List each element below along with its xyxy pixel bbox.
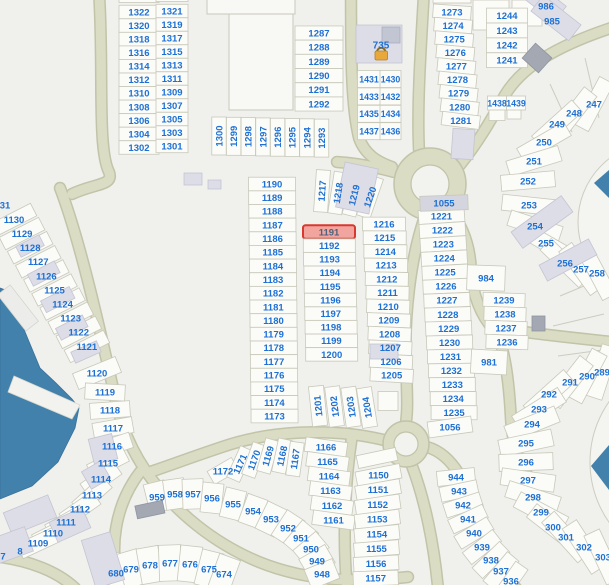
parcel-label-1164: 1164 [319, 472, 340, 483]
parcel-label-1190: 1190 [262, 179, 283, 190]
parcel-label-1166: 1166 [316, 442, 337, 453]
parcel-label-1213: 1213 [376, 261, 397, 272]
parcel-label-1313: 1313 [161, 60, 182, 71]
parcel-label-250: 250 [536, 137, 552, 148]
parcel-label-1121: 1121 [77, 342, 98, 353]
parcel-label-255: 255 [538, 238, 555, 249]
parcel-label-303: 303 [595, 552, 609, 563]
parcel-label-1196: 1196 [320, 295, 341, 306]
parcel-label-1153: 1153 [367, 515, 388, 526]
parcel-label-1179: 1179 [263, 330, 284, 341]
parcel-label-677: 677 [162, 558, 178, 569]
parcel-label-1279: 1279 [448, 89, 469, 100]
parcel-label-1114: 1114 [91, 474, 112, 485]
parcel-label-1156: 1156 [366, 559, 387, 570]
parcel-label-1432: 1432 [381, 92, 401, 102]
parcel-label-1175: 1175 [264, 384, 285, 395]
parcel[interactable] [119, 0, 159, 3]
parcel-label-1187: 1187 [262, 220, 283, 231]
parcel-label-1308: 1308 [128, 102, 149, 113]
parcel-label-302: 302 [576, 542, 592, 553]
parcel-label-1239: 1239 [493, 295, 514, 306]
parcel[interactable] [156, 0, 188, 2]
parcel-label-1235: 1235 [444, 408, 466, 419]
parcel-label-1217: 1217 [317, 180, 329, 202]
parcel-label-1152: 1152 [367, 500, 388, 511]
parcel-label-1315: 1315 [161, 47, 183, 58]
parcel-label-679: 679 [123, 564, 139, 575]
parcel-label-984: 984 [478, 273, 495, 284]
parcel-label-297: 297 [520, 475, 536, 486]
parcel-label-1300: 1300 [214, 125, 225, 146]
parcel-label-1201: 1201 [312, 394, 325, 417]
parcel-label-1236: 1236 [496, 337, 517, 348]
parcel-label-1154: 1154 [367, 529, 388, 540]
parcel-label-957: 957 [185, 489, 201, 500]
parcel-label-1299: 1299 [229, 126, 240, 147]
parcel-label-1227: 1227 [436, 296, 457, 307]
parcel-label-1125: 1125 [44, 285, 65, 296]
parcel-label-301: 301 [558, 532, 575, 543]
parcel-label-1297: 1297 [258, 126, 269, 147]
parcel-label-1316: 1316 [128, 48, 149, 59]
parcel-label-1123: 1123 [60, 314, 81, 325]
parcel-label-956: 956 [204, 493, 220, 504]
parcel-label-1301: 1301 [161, 141, 183, 152]
parcel-label-1288: 1288 [308, 43, 329, 54]
parcel[interactable] [433, 0, 471, 3]
parcel-label-1321: 1321 [161, 6, 183, 17]
parcel-label-954: 954 [245, 506, 262, 517]
parcel-label-1433: 1433 [359, 92, 379, 102]
parcel-label-1216: 1216 [373, 219, 394, 230]
parcel-label-1230: 1230 [439, 338, 460, 349]
parcel-label-1289: 1289 [308, 57, 329, 68]
parcel-label-1225: 1225 [435, 268, 457, 279]
parcel-label-1439: 1439 [506, 98, 526, 108]
parcel-label-1287: 1287 [308, 28, 329, 39]
parcel-label-1304: 1304 [128, 129, 150, 140]
map-label-985: 985 [544, 16, 561, 27]
parcel-label-1302: 1302 [128, 143, 149, 154]
parcel-label-1228: 1228 [437, 310, 458, 321]
parcel-label-1232: 1232 [441, 366, 462, 377]
parcel-label-939: 939 [474, 542, 490, 553]
parcel-label-1180: 1180 [263, 316, 284, 327]
parcel-label-1195: 1195 [320, 282, 341, 293]
parcel-label-1189: 1189 [262, 193, 283, 204]
parcel-label-249: 249 [549, 119, 565, 130]
parcel-label-1122: 1122 [68, 328, 89, 339]
parcel-label-678: 678 [142, 560, 158, 571]
parcel-label-1207: 1207 [380, 343, 401, 354]
parcel-label-1435: 1435 [359, 109, 379, 119]
parcel-label-1161: 1161 [323, 515, 344, 526]
parcel-label-1233: 1233 [442, 380, 463, 391]
parcel-label-1178: 1178 [263, 343, 284, 354]
parcel-label-1172: 1172 [213, 466, 234, 477]
parcel-label-959: 959 [149, 492, 165, 503]
parcel-label-291: 291 [562, 377, 579, 388]
parcel[interactable] [489, 110, 505, 121]
parcel-label-1231: 1231 [440, 352, 462, 363]
parcel-label-680: 680 [108, 568, 124, 579]
parcel-label-257: 257 [573, 264, 589, 275]
parcel-label-1306: 1306 [128, 116, 149, 127]
parcel-label-936: 936 [503, 576, 519, 585]
parcel-label-948: 948 [314, 569, 330, 580]
parcel-label-299: 299 [533, 507, 549, 518]
parcel-label-1434: 1434 [381, 109, 401, 119]
parcel-label-1163: 1163 [320, 486, 341, 497]
parcel-label-1238: 1238 [494, 309, 515, 320]
parcel-label-1436: 1436 [381, 127, 401, 137]
parcel-label-1174: 1174 [264, 398, 285, 409]
parcel-label-1275: 1275 [444, 35, 466, 46]
parcel-label-1244: 1244 [496, 11, 518, 22]
map-canvas[interactable]: 1322132013181316131413121310130813061304… [0, 0, 609, 585]
parcel-label-1222: 1222 [432, 225, 453, 236]
parcel-label-1314: 1314 [128, 62, 150, 73]
parcel-label-1215: 1215 [374, 233, 396, 244]
parcel-label-1181: 1181 [263, 302, 284, 313]
parcel-label-1205: 1205 [381, 371, 403, 382]
parcel-label-1177: 1177 [264, 357, 285, 368]
parcel-label-1438: 1438 [487, 98, 507, 108]
parcel-label-251: 251 [526, 156, 543, 167]
parcel-label-1276: 1276 [445, 48, 466, 59]
parcel-label-1165: 1165 [317, 457, 338, 468]
parcel-label-1206: 1206 [380, 357, 401, 368]
parcel-label-1211: 1211 [377, 288, 398, 299]
parcel-label-1274: 1274 [443, 21, 465, 32]
parcel-label-1223: 1223 [433, 240, 454, 251]
parcel-label-252: 252 [520, 176, 536, 187]
parcel-label-941: 941 [460, 514, 477, 525]
parcel-label-1115: 1115 [98, 458, 119, 469]
parcel-label-293: 293 [531, 404, 547, 415]
parcel-label-1296: 1296 [273, 127, 284, 148]
parcel-label-1310: 1310 [128, 89, 149, 100]
parcel-label-1318: 1318 [128, 35, 149, 46]
parcel-label-1173: 1173 [264, 411, 285, 422]
parcel-label-1116: 1116 [102, 441, 122, 452]
parcel-label-1293: 1293 [317, 128, 328, 149]
parcel-label-1294: 1294 [302, 127, 313, 149]
map-label-31: 31 [0, 200, 11, 211]
parcel-label-1295: 1295 [288, 126, 299, 148]
parcel-label-1176: 1176 [264, 371, 285, 382]
parcel-label-1320: 1320 [128, 21, 149, 32]
parcel-label-1113: 1113 [82, 490, 102, 501]
parcel-label-1191: 1191 [319, 227, 340, 238]
parcel-label-1127: 1127 [28, 257, 49, 268]
parcel-label-1199: 1199 [321, 336, 342, 347]
parcel-label-1162: 1162 [322, 501, 343, 512]
parcel-label-1280: 1280 [449, 102, 470, 113]
parcel-label-1437: 1437 [359, 127, 379, 137]
parcel-label-1200: 1200 [321, 350, 342, 361]
parcel-label-940: 940 [466, 528, 482, 539]
parcel-label-1184: 1184 [263, 261, 284, 272]
parcel-label-1194: 1194 [320, 268, 341, 279]
parcel-label-1118: 1118 [100, 405, 120, 416]
parcel-label-1188: 1188 [262, 207, 283, 218]
parcel-label-943: 943 [451, 486, 467, 497]
parcel-label-1055: 1055 [433, 198, 455, 209]
parcel-label-1242: 1242 [496, 41, 517, 52]
parcel-label-1317: 1317 [161, 33, 182, 44]
map-label-986: 986 [538, 1, 554, 12]
parcel-label-1183: 1183 [263, 275, 284, 286]
parcel-label-1309: 1309 [161, 87, 182, 98]
parcel-label-1182: 1182 [263, 289, 284, 300]
parcel-label-296: 296 [518, 457, 534, 468]
parcel-label-1124: 1124 [52, 300, 73, 311]
parcel-label-1273: 1273 [441, 7, 462, 18]
parcel-label-1307: 1307 [161, 101, 182, 112]
parcel-label-253: 253 [521, 200, 537, 211]
parcel-label-944: 944 [448, 472, 465, 483]
parcel-label-950: 950 [303, 544, 319, 555]
parcel-label-1130: 1130 [4, 215, 25, 226]
parcel-label-1198: 1198 [321, 323, 342, 334]
map-label-8: 8 [17, 546, 22, 557]
parcel-label-292: 292 [541, 389, 557, 400]
parcel-label-1305: 1305 [161, 114, 183, 125]
parcel-label-258: 258 [589, 268, 605, 279]
parcel-label-1192: 1192 [319, 241, 340, 252]
parcel-label-1278: 1278 [447, 75, 468, 86]
parcel-label-1111: 1111 [56, 517, 76, 528]
parcel-label-1056: 1056 [439, 422, 460, 433]
parcel-label-1126: 1126 [36, 271, 57, 282]
parcel-label-290: 290 [579, 371, 595, 382]
parcel-label-1210: 1210 [378, 302, 399, 313]
parcel-label-1109: 1109 [28, 538, 49, 549]
parcel-label-1197: 1197 [320, 309, 341, 320]
parcel-label-1226: 1226 [435, 282, 456, 293]
parcel-label-248: 248 [566, 108, 582, 119]
parcel-label-1322: 1322 [128, 7, 149, 18]
parcel-label-951: 951 [293, 533, 310, 544]
parcel-label-1290: 1290 [308, 71, 329, 82]
parcel-label-1208: 1208 [379, 329, 400, 340]
parcel-label-942: 942 [455, 500, 471, 511]
parcel-label-981: 981 [481, 357, 498, 368]
parcel-label-1150: 1150 [368, 470, 389, 481]
parcel-label-1243: 1243 [496, 26, 517, 37]
parcel-label-247: 247 [586, 99, 602, 110]
parcel[interactable] [378, 392, 398, 411]
parcel-label-1229: 1229 [438, 324, 459, 335]
parcel-label-958: 958 [167, 489, 183, 500]
map-label-7: 7 [0, 551, 5, 562]
parcel-label-1224: 1224 [434, 254, 456, 265]
parcel-label-938: 938 [483, 555, 499, 566]
parcel-label-949: 949 [309, 556, 325, 567]
parcel-label-1291: 1291 [308, 85, 330, 96]
parcel-label-295: 295 [518, 438, 535, 449]
parcel-label-1117: 1117 [103, 423, 123, 434]
parcel-label-294: 294 [524, 419, 541, 430]
parcel-label-1186: 1186 [262, 234, 283, 245]
parcel-label-1214: 1214 [375, 247, 397, 258]
parcel[interactable] [507, 109, 521, 119]
parcel-label-955: 955 [225, 499, 242, 510]
parcel-label-953: 953 [263, 514, 279, 525]
parcel-label-1241: 1241 [496, 56, 518, 67]
parcel-label-1119: 1119 [95, 387, 115, 398]
parcel-label-1298: 1298 [244, 126, 255, 147]
parcel-label-1311: 1311 [162, 74, 183, 85]
parcel-label-1112: 1112 [70, 504, 90, 515]
parcel-label-298: 298 [525, 492, 541, 503]
parcel-label-1129: 1129 [12, 229, 33, 240]
parcel-label-1185: 1185 [262, 248, 283, 259]
parcel-label-1234: 1234 [443, 394, 465, 405]
parcel-label-674: 674 [216, 569, 233, 580]
parcel-label-1193: 1193 [319, 255, 340, 266]
parcel-label-1281: 1281 [450, 116, 472, 127]
parcel-label-1277: 1277 [446, 62, 467, 73]
parcel-label-1237: 1237 [495, 323, 516, 334]
map-label-735: 735 [373, 40, 390, 51]
parcel-label-1292: 1292 [308, 99, 329, 110]
parcel-label-1209: 1209 [378, 316, 399, 327]
parcel-label-1128: 1128 [20, 243, 41, 254]
map-viewport[interactable]: 1322132013181316131413121310130813061304… [0, 0, 609, 585]
parcel-label-254: 254 [527, 221, 544, 232]
parcel-label-1430: 1430 [381, 74, 401, 84]
parcel-label-1312: 1312 [128, 75, 149, 86]
parcel-label-1319: 1319 [161, 20, 182, 31]
parcel-label-1303: 1303 [161, 128, 182, 139]
parcel-label-676: 676 [182, 559, 198, 570]
parcel-label-1157: 1157 [365, 574, 386, 585]
parcel-label-1120: 1120 [87, 368, 108, 379]
parcel-label-1221: 1221 [431, 211, 453, 222]
parcel-label-1155: 1155 [366, 544, 387, 555]
parcel-label-256: 256 [557, 258, 573, 269]
parcel-label-1151: 1151 [368, 485, 389, 496]
parcel-label-1431: 1431 [359, 74, 379, 84]
parcel-label-289: 289 [594, 367, 609, 378]
parcel-label-1212: 1212 [376, 274, 397, 285]
